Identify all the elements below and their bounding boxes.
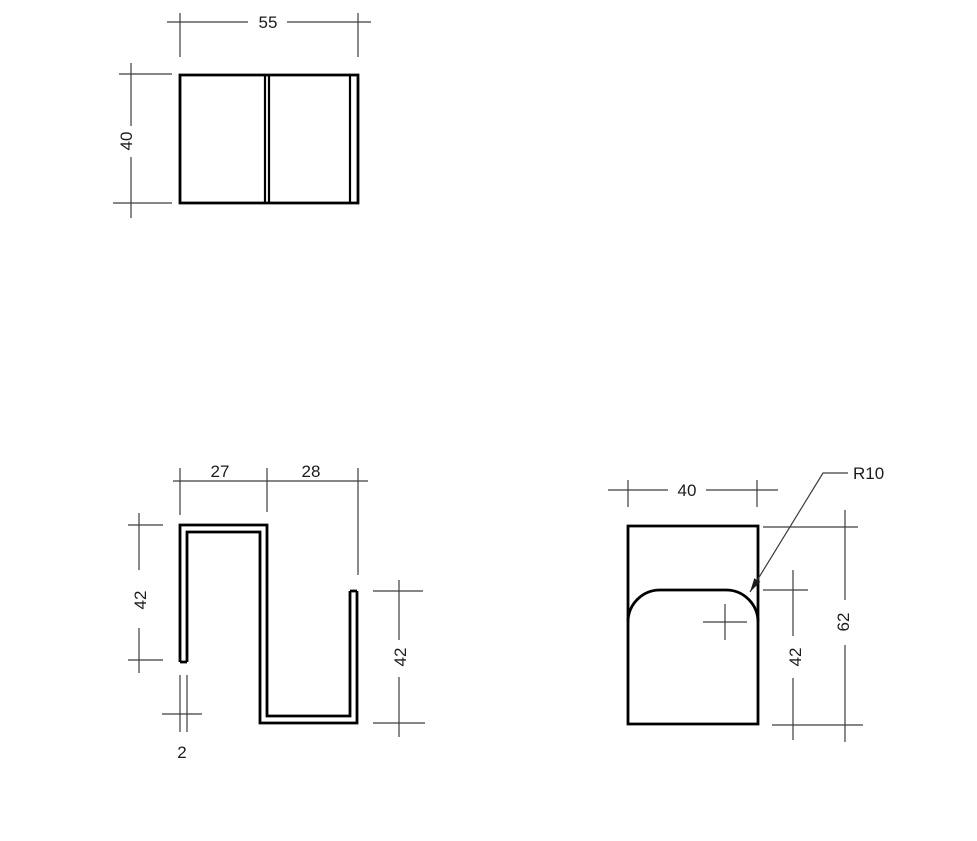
dimension-27-28-extension-lines (180, 468, 358, 575)
dimension-42-right-label: 42 (391, 648, 410, 667)
dimension-2-extension-lines (180, 675, 187, 732)
dimension-62-label: 62 (834, 613, 853, 632)
dimension-42-left: 42 (128, 513, 163, 673)
side-view: 40 42 62 R10 (608, 464, 884, 742)
dimension-62: 62 (763, 510, 863, 742)
radius-leader-line (750, 473, 848, 592)
radius-leader-r10: R10 (750, 464, 884, 592)
dimension-27-28: 27 28 (173, 462, 368, 575)
front-view: 27 28 42 2 42 (128, 462, 425, 762)
dimension-40-side-label: 40 (678, 481, 697, 500)
dimension-2: 2 (162, 675, 202, 762)
technical-drawing: 55 40 27 28 42 (0, 0, 977, 841)
dimension-40-side: 40 (608, 480, 778, 507)
dimension-42-right: 42 (373, 580, 425, 737)
top-view: 55 40 (113, 13, 371, 218)
dimension-2-label: 2 (177, 743, 186, 762)
dimension-42-side-label: 42 (786, 648, 805, 667)
radius-r10-label: R10 (853, 464, 884, 483)
dimension-28-label: 28 (302, 462, 321, 481)
dimension-40: 40 (113, 63, 172, 218)
dimension-27-label: 27 (211, 462, 230, 481)
side-view-rounded-edge (628, 590, 758, 622)
dimension-55: 55 (167, 13, 371, 57)
dimension-40-label: 40 (117, 132, 136, 151)
dimension-55-label: 55 (259, 13, 278, 32)
s-profile-outline (180, 525, 357, 723)
dimension-42-left-label: 42 (131, 591, 150, 610)
side-view-outline (628, 526, 758, 724)
drawing-canvas: 55 40 27 28 42 (0, 0, 977, 841)
top-view-middle-edge-lines (265, 75, 269, 203)
dimension-42-side: 42 (763, 570, 808, 740)
radius-center-mark (703, 604, 747, 640)
